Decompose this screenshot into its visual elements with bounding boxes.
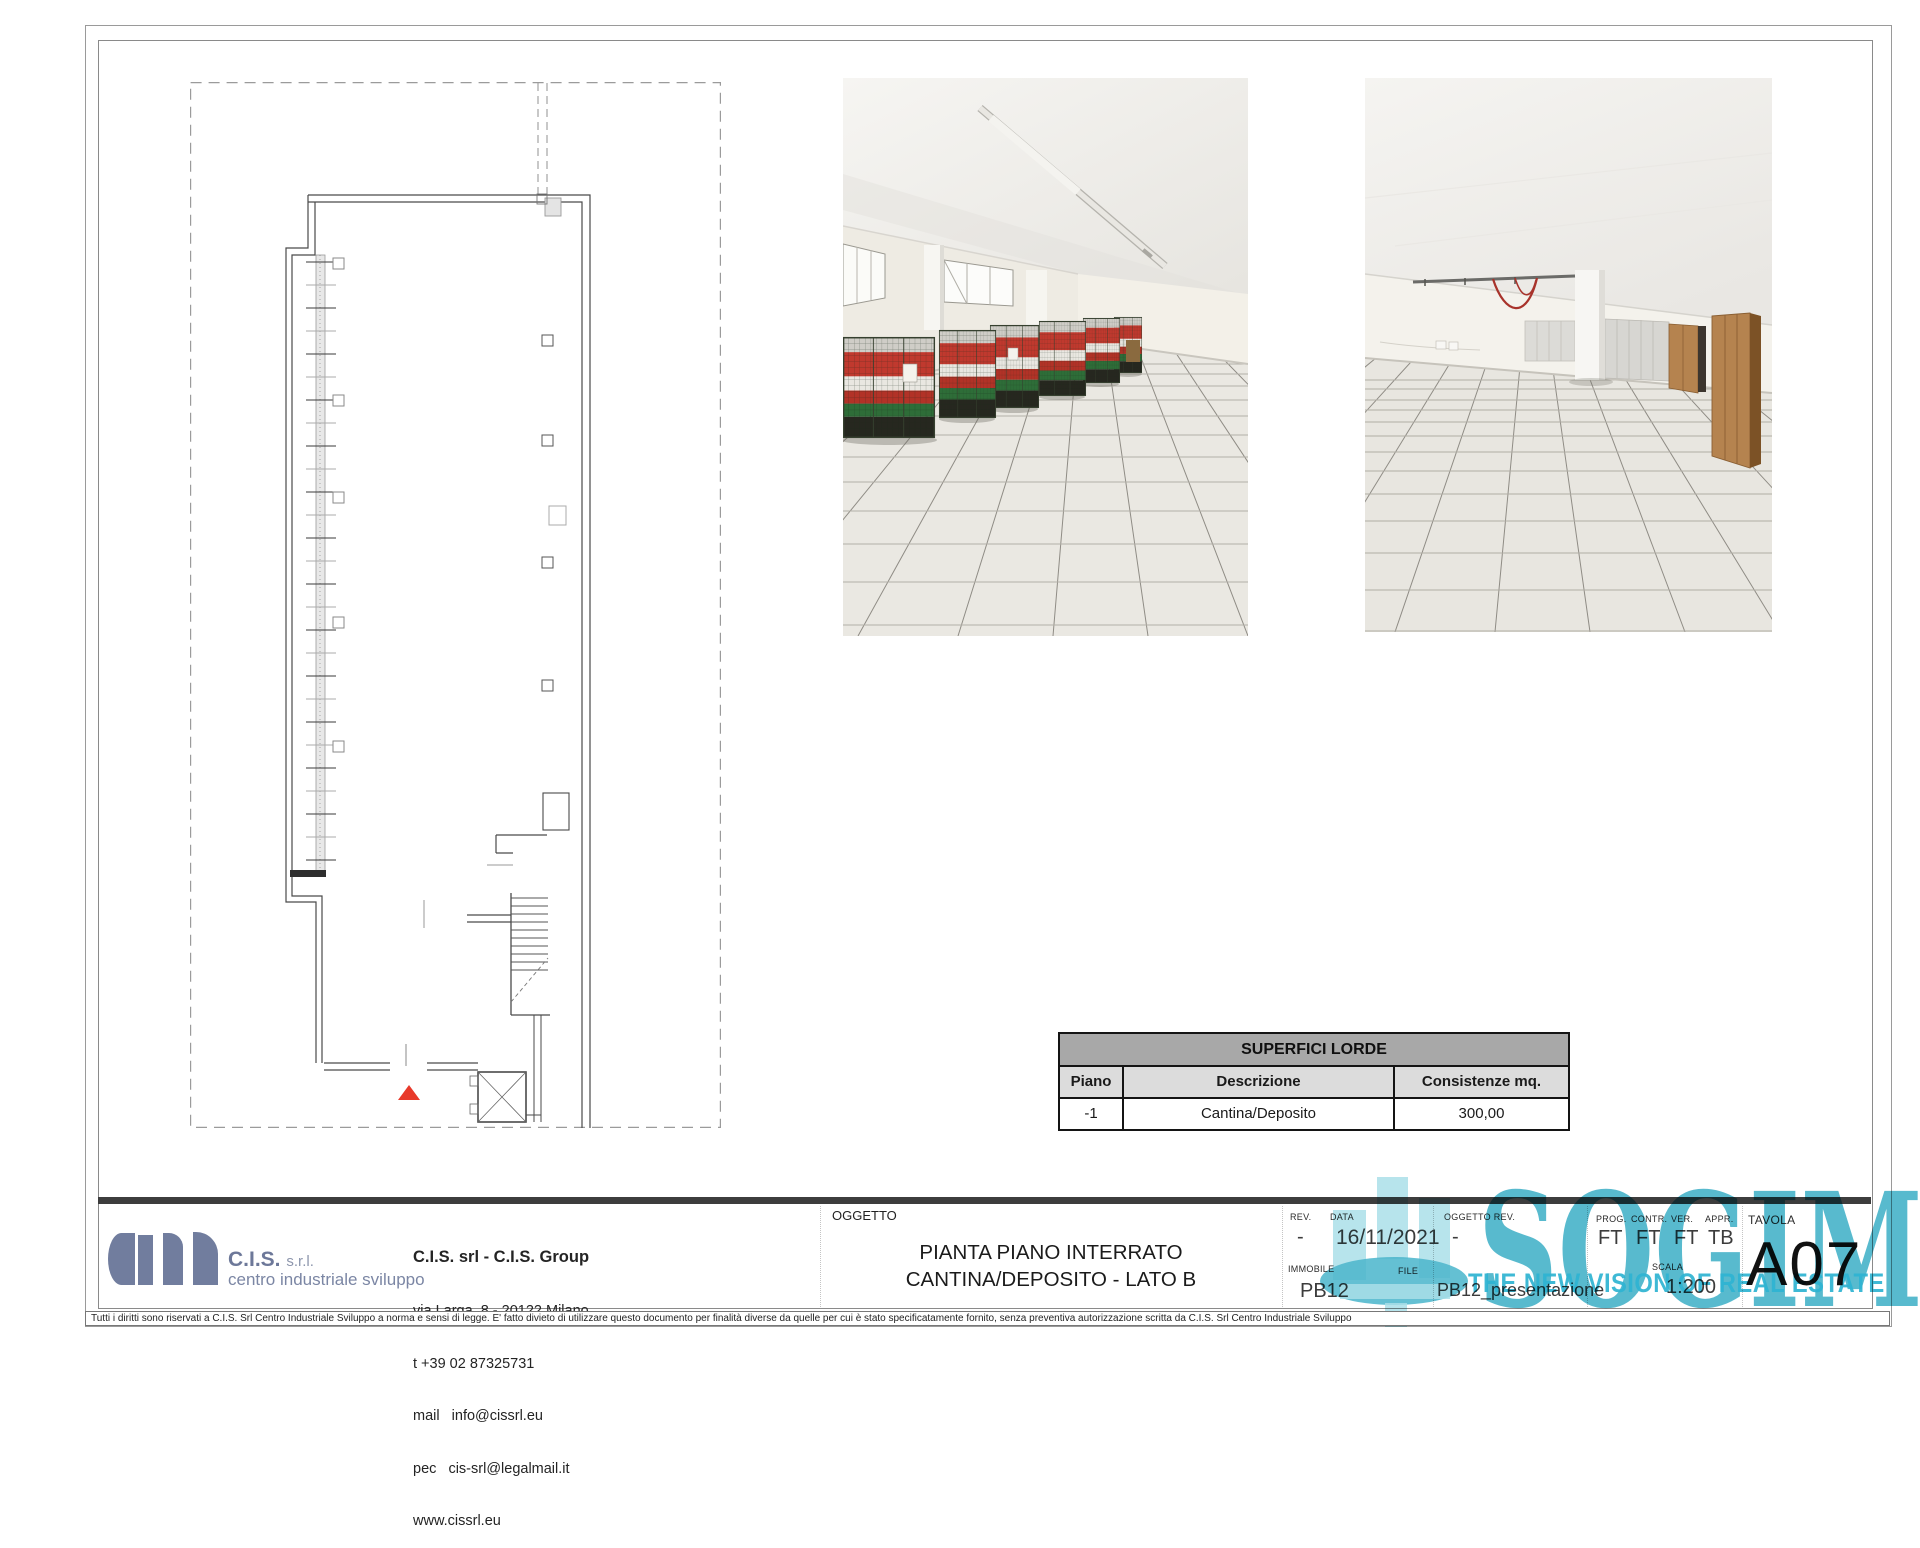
photo2-svg: [1365, 78, 1772, 632]
company-line-4: mail info@cissrl.eu: [413, 1408, 589, 1426]
photo-basement-storage-cages: [843, 78, 1248, 636]
plan-dashed-stub: [538, 83, 547, 195]
plan-entrance-triangle-marker: [398, 1085, 420, 1100]
floor-plan-svg: [190, 82, 721, 1128]
plan-boundary-dashed: [191, 83, 721, 1128]
cis-logo-shape-3: [163, 1233, 183, 1285]
floor-plan-drawing: [190, 82, 721, 1128]
surfaces-col-descrizione: Descrizione: [1122, 1067, 1395, 1097]
surfaces-cell-descrizione: Cantina/Deposito: [1122, 1099, 1395, 1129]
disclaimer-strip: Tutti i diritti sono riservati a C.I.S. …: [85, 1311, 1890, 1326]
plan-columns-right: [542, 335, 553, 691]
drawing-subject: PIANTA PIANO INTERRATO CANTINA/DEPOSITO …: [820, 1239, 1282, 1293]
plan-rack-strip: [316, 255, 325, 873]
surfaces-col-consistenze: Consistenze mq.: [1395, 1067, 1568, 1097]
plan-rack-end-block: [290, 870, 326, 877]
plan-elevator: [470, 1015, 541, 1122]
cis-logo-subtitle: centro industriale sviluppo: [228, 1270, 425, 1290]
rev-label: REV.: [1290, 1212, 1311, 1222]
surfaces-col-piano: Piano: [1060, 1067, 1122, 1097]
subject-line-1: PIANTA PIANO INTERRATO: [820, 1239, 1282, 1266]
company-line-1: C.I.S. srl - C.I.S. Group: [413, 1247, 589, 1268]
company-line-6: www.cissrl.eu: [413, 1513, 589, 1531]
oggetto-label: OGGETTO: [832, 1208, 897, 1223]
company-line-5: pec cis-srl@legalmail.it: [413, 1461, 589, 1479]
surfaces-table-title: SUPERFICI LORDE: [1060, 1034, 1568, 1067]
surfaces-table-header-row: Piano Descrizione Consistenze mq.: [1060, 1067, 1568, 1099]
plan-opening-square: [549, 506, 566, 525]
surfaces-cell-consistenze: 300,00: [1395, 1099, 1568, 1129]
watermark-logo-text: SOGIM: [1478, 1173, 1920, 1331]
photo-basement-empty: [1365, 78, 1772, 632]
surfaces-cell-piano: -1: [1060, 1099, 1122, 1129]
photo2-floor: [1365, 358, 1772, 632]
plan-pilaster: [543, 793, 569, 830]
cis-logo-shape-2: [138, 1235, 153, 1285]
plan-columns-left: [333, 258, 344, 752]
titleblock-divider-2: [1282, 1206, 1283, 1307]
subject-line-2: CANTINA/DEPOSITO - LATO B: [820, 1266, 1282, 1293]
plan-stairs: [511, 893, 550, 1015]
cis-logo-name-text: C.I.S.: [228, 1248, 281, 1271]
surfaces-table-data-row: -1 Cantina/Deposito 300,00: [1060, 1099, 1568, 1129]
watermark-key-bar-2: [1377, 1177, 1408, 1259]
company-line-3: t +39 02 87325731: [413, 1356, 589, 1374]
photo2-wall-box-2: [1449, 342, 1458, 350]
cis-logo-name: C.I.S. s.r.l.: [228, 1248, 314, 1272]
cis-logo-suffix: s.r.l.: [286, 1253, 314, 1270]
photo2-wood-cabinet: [1669, 324, 1706, 393]
oggetto-rev-value: -: [1452, 1226, 1459, 1249]
rev-value: -: [1297, 1226, 1304, 1249]
watermark-key-cross-bar: [1340, 1284, 1450, 1299]
photo1-pillar-shade: [940, 245, 944, 330]
photo2-wall-box-1: [1436, 341, 1446, 349]
photo2-wood-wardrobe: [1712, 313, 1761, 468]
surfaces-table: SUPERFICI LORDE Piano Descrizione Consis…: [1058, 1032, 1570, 1131]
watermark-tagline: THE NEW VISION OF REAL ESTATE: [1468, 1268, 1885, 1299]
company-info: C.I.S. srl - C.I.S. Group via Larga, 8 -…: [413, 1212, 589, 1548]
photo1-svg: [843, 78, 1248, 636]
cis-logo-shape-1: [108, 1233, 135, 1285]
